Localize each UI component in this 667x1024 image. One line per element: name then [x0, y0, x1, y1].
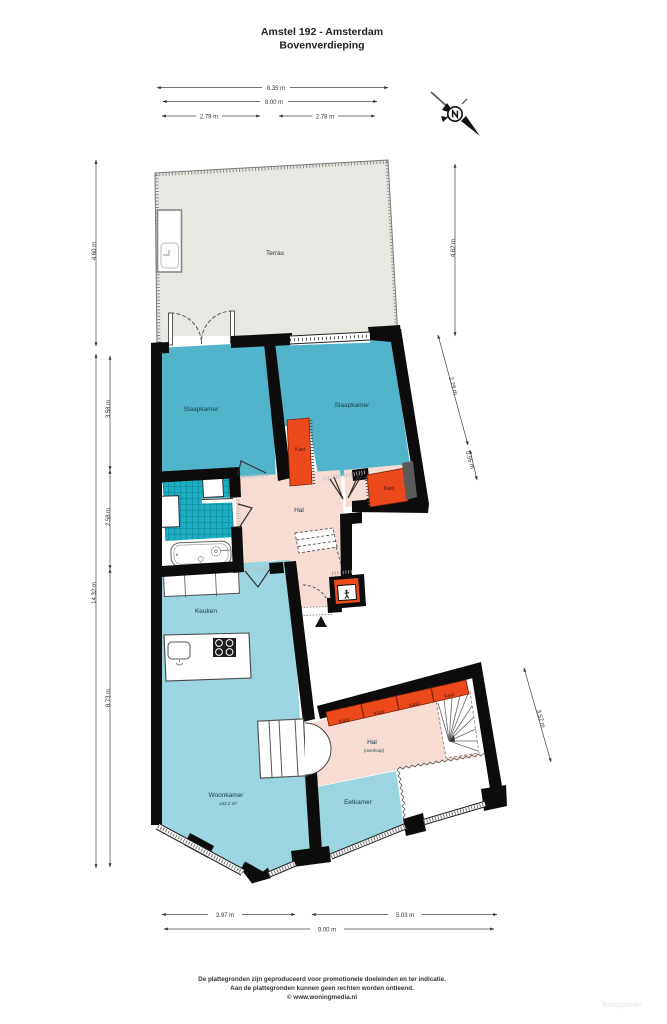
svg-text:8.35 m: 8.35 m — [267, 86, 285, 92]
svg-text:2.58 m: 2.58 m — [106, 508, 112, 526]
svg-text:Bovenverdieping: Bovenverdieping — [279, 40, 364, 52]
svg-text:Hal: Hal — [294, 507, 304, 514]
svg-text:9.00 m: 9.00 m — [318, 928, 336, 934]
svg-text:2.79 m: 2.79 m — [200, 115, 218, 121]
svg-text:4.60 m: 4.60 m — [92, 242, 98, 260]
svg-text:8.00 m: 8.00 m — [265, 100, 283, 106]
svg-text:De plattegronden zijn geproduc: De plattegronden zijn geproduceerd voor … — [198, 976, 446, 983]
svg-text:8.73 m: 8.73 m — [106, 689, 112, 707]
svg-text:Terras: Terras — [266, 250, 285, 257]
svg-text:±42.2 m²: ±42.2 m² — [219, 801, 237, 806]
svg-text:© www.woningmedia.nl: © www.woningmedia.nl — [287, 993, 357, 1001]
svg-text:(overloop): (overloop) — [364, 748, 385, 753]
svg-text:Slaapkamer: Slaapkamer — [184, 406, 220, 413]
svg-text:Kast: Kast — [384, 486, 395, 492]
svg-text:Woonkamer: Woonkamer — [209, 792, 245, 799]
svg-text:3.58 m: 3.58 m — [106, 400, 112, 418]
svg-text:Keuken: Keuken — [195, 608, 217, 615]
svg-text:3.97 m: 3.97 m — [216, 913, 234, 919]
svg-text:Hal: Hal — [367, 739, 377, 746]
svg-text:Eetkamer: Eetkamer — [344, 799, 373, 806]
svg-text:Aan de plattegronden kunnen ge: Aan de plattegronden kunnen geen rechten… — [230, 985, 414, 992]
svg-text:14.32 m: 14.32 m — [92, 582, 98, 604]
svg-text:Slaapkamer: Slaapkamer — [335, 402, 371, 409]
svg-text:4.62 m: 4.62 m — [451, 239, 457, 257]
svg-text:Kast: Kast — [295, 447, 306, 453]
svg-text:5.03 m: 5.03 m — [396, 913, 414, 919]
svg-text:Amstel 192 - Amsterdam: Amstel 192 - Amsterdam — [261, 26, 383, 38]
svg-text:floorplanner: floorplanner — [602, 1000, 642, 1009]
svg-text:2.78 m: 2.78 m — [316, 115, 334, 121]
